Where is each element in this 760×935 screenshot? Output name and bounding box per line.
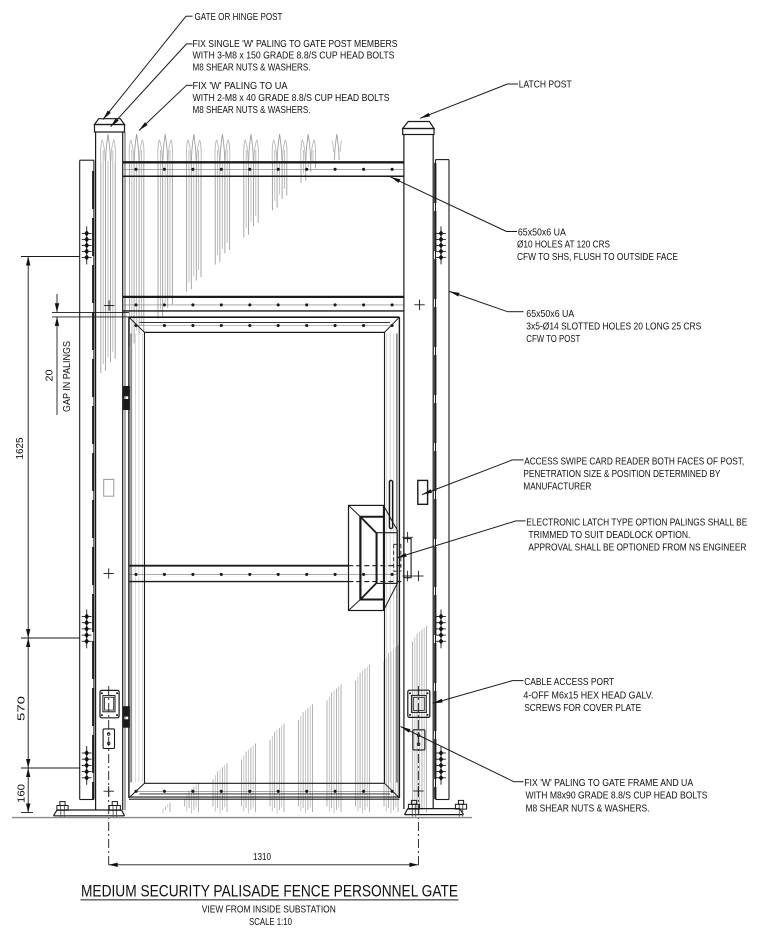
svg-text:1310: 1310 [253,852,271,863]
svg-text:20: 20 [45,369,56,381]
svg-text:VIEW FROM INSIDE SUBSTATION: VIEW FROM INSIDE SUBSTATION [202,905,336,916]
svg-text:LATCH POST: LATCH POST [519,80,573,91]
svg-text:3x5-Ø14 SLOTTED HOLES 20 LONG: 3x5-Ø14 SLOTTED HOLES 20 LONG 25 CRS [526,321,701,332]
svg-text:160: 160 [17,784,28,803]
svg-text:FIX 'W' PALING TO GATE FRAME A: FIX 'W' PALING TO GATE FRAME AND UA [524,778,693,789]
svg-text:65x50x6 UA: 65x50x6 UA [518,228,566,239]
svg-text:ACCESS SWIPE CARD READER BOTH: ACCESS SWIPE CARD READER BOTH FACES OF P… [524,456,744,467]
svg-text:WITH M8x90 GRADE 8.8/S CUP HEA: WITH M8x90 GRADE 8.8/S CUP HEAD BOLTS [526,791,708,802]
svg-text:PENETRATION SIZE & POSITION DE: PENETRATION SIZE & POSITION DETERMINED B… [523,469,720,480]
svg-text:TRIMMED TO SUIT DEADLOCK OPTIO: TRIMMED TO SUIT DEADLOCK OPTION. [528,530,690,541]
svg-text:M8 SHEAR NUTS & WASHERS.: M8 SHEAR NUTS & WASHERS. [193,105,311,116]
svg-text:APPROVAL SHALL BE OPTIONED FRO: APPROVAL SHALL BE OPTIONED FROM NS ENGIN… [528,543,746,554]
svg-text:GAP IN PALINGS: GAP IN PALINGS [62,341,73,412]
svg-text:WITH 2-M8 x 40 GRADE 8.8/S CUP: WITH 2-M8 x 40 GRADE 8.8/S CUP HEAD BOLT… [193,93,390,104]
svg-text:M8 SHEAR NUTS & WASHERS.: M8 SHEAR NUTS & WASHERS. [193,63,311,74]
svg-text:CABLE ACCESS PORT: CABLE ACCESS PORT [524,677,615,688]
svg-text:WITH 3-M8 x 150 GRADE 8.8/S CU: WITH 3-M8 x 150 GRADE 8.8/S CUP HEAD BOL… [193,51,395,62]
svg-text:CFW TO SHS, FLUSH TO OUTSIDE F: CFW TO SHS, FLUSH TO OUTSIDE FACE [517,252,678,263]
svg-text:SCALE 1:10: SCALE 1:10 [249,917,292,928]
svg-text:M8 SHEAR NUTS & WASHERS.: M8 SHEAR NUTS & WASHERS. [526,803,650,814]
svg-text:GATE OR HINGE POST: GATE OR HINGE POST [195,12,284,23]
svg-text:MEDIUM SECURITY PALISADE FENCE: MEDIUM SECURITY PALISADE FENCE PERSONNEL… [81,881,458,900]
svg-text:Ø10 HOLES AT 120 CRS: Ø10 HOLES AT 120 CRS [517,240,610,251]
svg-text:4-OFF M6x15 HEX HEAD GALV.: 4-OFF M6x15 HEX HEAD GALV. [523,691,653,702]
svg-text:MANUFACTURER: MANUFACTURER [523,482,591,493]
svg-text:FIX SINGLE 'W' PALING TO GATE: FIX SINGLE 'W' PALING TO GATE POST MEMBE… [193,39,398,50]
svg-text:SCREWS FOR COVER PLATE: SCREWS FOR COVER PLATE [524,703,641,714]
svg-text:570: 570 [17,696,28,721]
svg-text:FIX 'W' PALING TO UA: FIX 'W' PALING TO UA [193,81,288,92]
svg-text:65x50x6 UA: 65x50x6 UA [526,309,574,320]
svg-text:1625: 1625 [15,437,26,459]
svg-text:CFW TO POST: CFW TO POST [526,334,581,345]
svg-text:ELECTRONIC LATCH TYPE OPTION P: ELECTRONIC LATCH TYPE OPTION PALINGS SHA… [526,517,747,528]
